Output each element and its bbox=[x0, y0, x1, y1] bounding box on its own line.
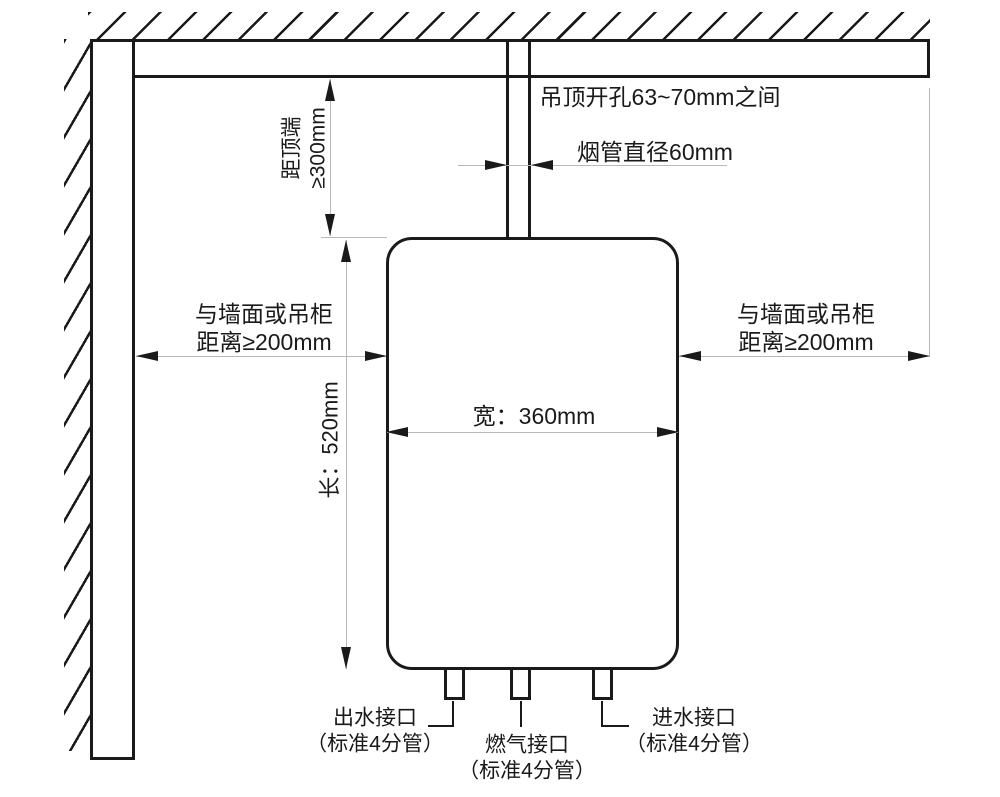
flue-dim-arrow-left bbox=[531, 160, 553, 170]
left-clearance-arrow-right bbox=[365, 351, 387, 361]
right-clearance-label: 与墙面或吊柜 距离≥200mm bbox=[737, 300, 875, 356]
top-clearance-label-line1: 距顶端 bbox=[279, 107, 305, 189]
flue-pipe-right-line bbox=[528, 39, 531, 238]
top-clearance-arrow-down bbox=[325, 214, 335, 236]
right-clearance-arrow-left bbox=[679, 351, 701, 361]
top-clearance-label: 距顶端 ≥300mm bbox=[279, 107, 330, 189]
flue-diameter-label: 烟管直径60mm bbox=[577, 138, 733, 166]
unit-width-arrow-left bbox=[386, 427, 408, 437]
left-clearance-arrow-left bbox=[136, 351, 158, 361]
unit-height-arrow-up bbox=[341, 240, 351, 262]
unit-height-arrow-down bbox=[341, 647, 351, 669]
right-clearance-label-line1: 与墙面或吊柜 bbox=[737, 300, 875, 328]
inlet-stub bbox=[592, 667, 613, 700]
gas-label-line1: 燃气接口 bbox=[458, 732, 596, 758]
unit-height-label: 长：520mm bbox=[318, 381, 345, 498]
water-heater-body bbox=[386, 237, 679, 670]
wall-hatch bbox=[64, 39, 90, 751]
left-clearance-label-line2: 距离≥200mm bbox=[195, 328, 333, 356]
top-clearance-arrow-up bbox=[325, 79, 335, 101]
outlet-label-line1: 出水接口 bbox=[306, 705, 444, 731]
flue-dim-arrow-right bbox=[485, 160, 507, 170]
outlet-label-line2: （标准4分管） bbox=[306, 731, 444, 757]
ceiling-hatch bbox=[88, 12, 930, 39]
wall bbox=[90, 39, 135, 760]
right-clearance-arrow-right bbox=[908, 351, 930, 361]
installation-diagram: 吊顶开孔63~70mm之间 烟管直径60mm 距顶端 ≥300mm 与墙面或吊柜… bbox=[0, 0, 1000, 797]
left-clearance-label: 与墙面或吊柜 距离≥200mm bbox=[195, 300, 333, 356]
ceiling-slab bbox=[90, 39, 930, 78]
inlet-label-line1: 进水接口 bbox=[625, 705, 763, 731]
outlet-leader-vertical bbox=[452, 701, 454, 727]
right-clearance-label-line2: 距离≥200mm bbox=[737, 328, 875, 356]
right-clearance-extension-line bbox=[929, 88, 930, 356]
inlet-label: 进水接口 （标准4分管） bbox=[625, 705, 763, 756]
right-clearance-dim-line bbox=[679, 356, 930, 357]
inlet-label-line2: （标准4分管） bbox=[625, 731, 763, 757]
gas-leader-vertical bbox=[520, 701, 522, 727]
inlet-leader-vertical bbox=[601, 701, 603, 727]
top-clearance-extension-line bbox=[321, 237, 387, 238]
unit-width-label: 宽：360mm bbox=[473, 402, 596, 430]
gas-label: 燃气接口 （标准4分管） bbox=[458, 732, 596, 783]
top-clearance-label-line2: ≥300mm bbox=[305, 107, 331, 189]
left-clearance-label-line1: 与墙面或吊柜 bbox=[195, 300, 333, 328]
left-clearance-dim-line bbox=[136, 356, 387, 357]
flue-pipe-left-line bbox=[506, 39, 509, 238]
unit-width-dim-line bbox=[387, 432, 678, 433]
outlet-label: 出水接口 （标准4分管） bbox=[306, 705, 444, 756]
unit-width-arrow-right bbox=[657, 427, 679, 437]
gas-label-line2: （标准4分管） bbox=[458, 758, 596, 784]
gas-stub bbox=[510, 667, 531, 700]
ceiling-opening-label: 吊顶开孔63~70mm之间 bbox=[540, 83, 781, 111]
outlet-stub bbox=[444, 667, 465, 700]
unit-height-dim-line bbox=[346, 240, 347, 669]
